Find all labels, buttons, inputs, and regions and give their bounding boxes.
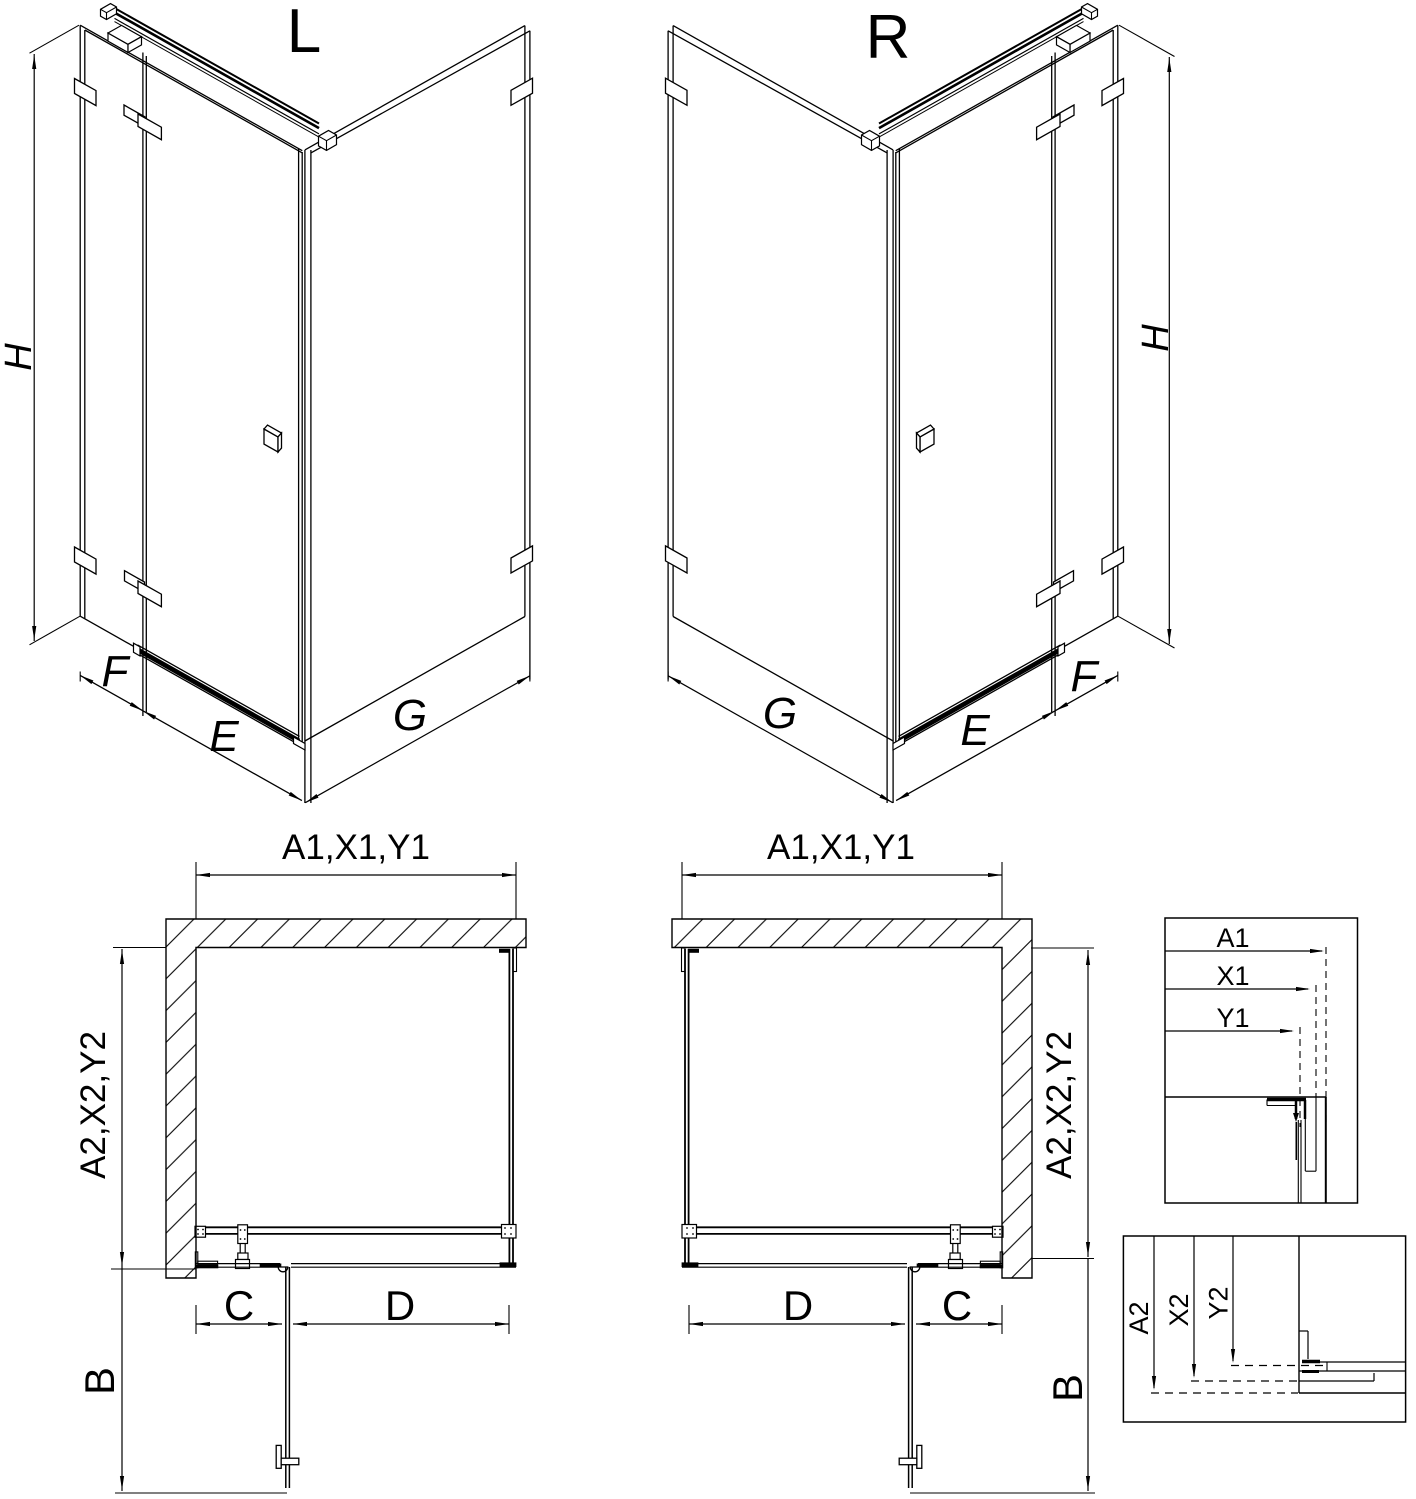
svg-text:E: E: [209, 712, 239, 761]
svg-text:A2: A2: [1124, 1301, 1154, 1334]
svg-text:A1: A1: [1216, 923, 1249, 953]
svg-text:D: D: [385, 1282, 415, 1329]
svg-text:Y1: Y1: [1216, 1003, 1249, 1033]
svg-text:A1,X1,Y1: A1,X1,Y1: [767, 828, 915, 867]
svg-text:E: E: [960, 706, 990, 755]
svg-text:A2,X2,Y2: A2,X2,Y2: [74, 1031, 113, 1179]
svg-text:R: R: [866, 3, 911, 72]
svg-text:F: F: [102, 647, 131, 696]
svg-text:G: G: [393, 691, 427, 740]
svg-text:A2,X2,Y2: A2,X2,Y2: [1040, 1031, 1079, 1179]
svg-text:G: G: [763, 689, 797, 738]
svg-text:X2: X2: [1164, 1293, 1194, 1326]
svg-text:L: L: [287, 0, 321, 66]
svg-text:F: F: [1071, 652, 1100, 701]
svg-text:B: B: [76, 1367, 123, 1395]
svg-text:A1,X1,Y1: A1,X1,Y1: [282, 828, 430, 867]
svg-text:H: H: [1135, 324, 1177, 352]
svg-text:B: B: [1044, 1374, 1091, 1402]
svg-text:D: D: [783, 1282, 813, 1329]
svg-text:C: C: [224, 1282, 254, 1329]
svg-text:X1: X1: [1216, 961, 1249, 991]
svg-text:H: H: [0, 343, 40, 371]
svg-text:Y2: Y2: [1204, 1286, 1234, 1319]
svg-text:C: C: [942, 1282, 972, 1329]
